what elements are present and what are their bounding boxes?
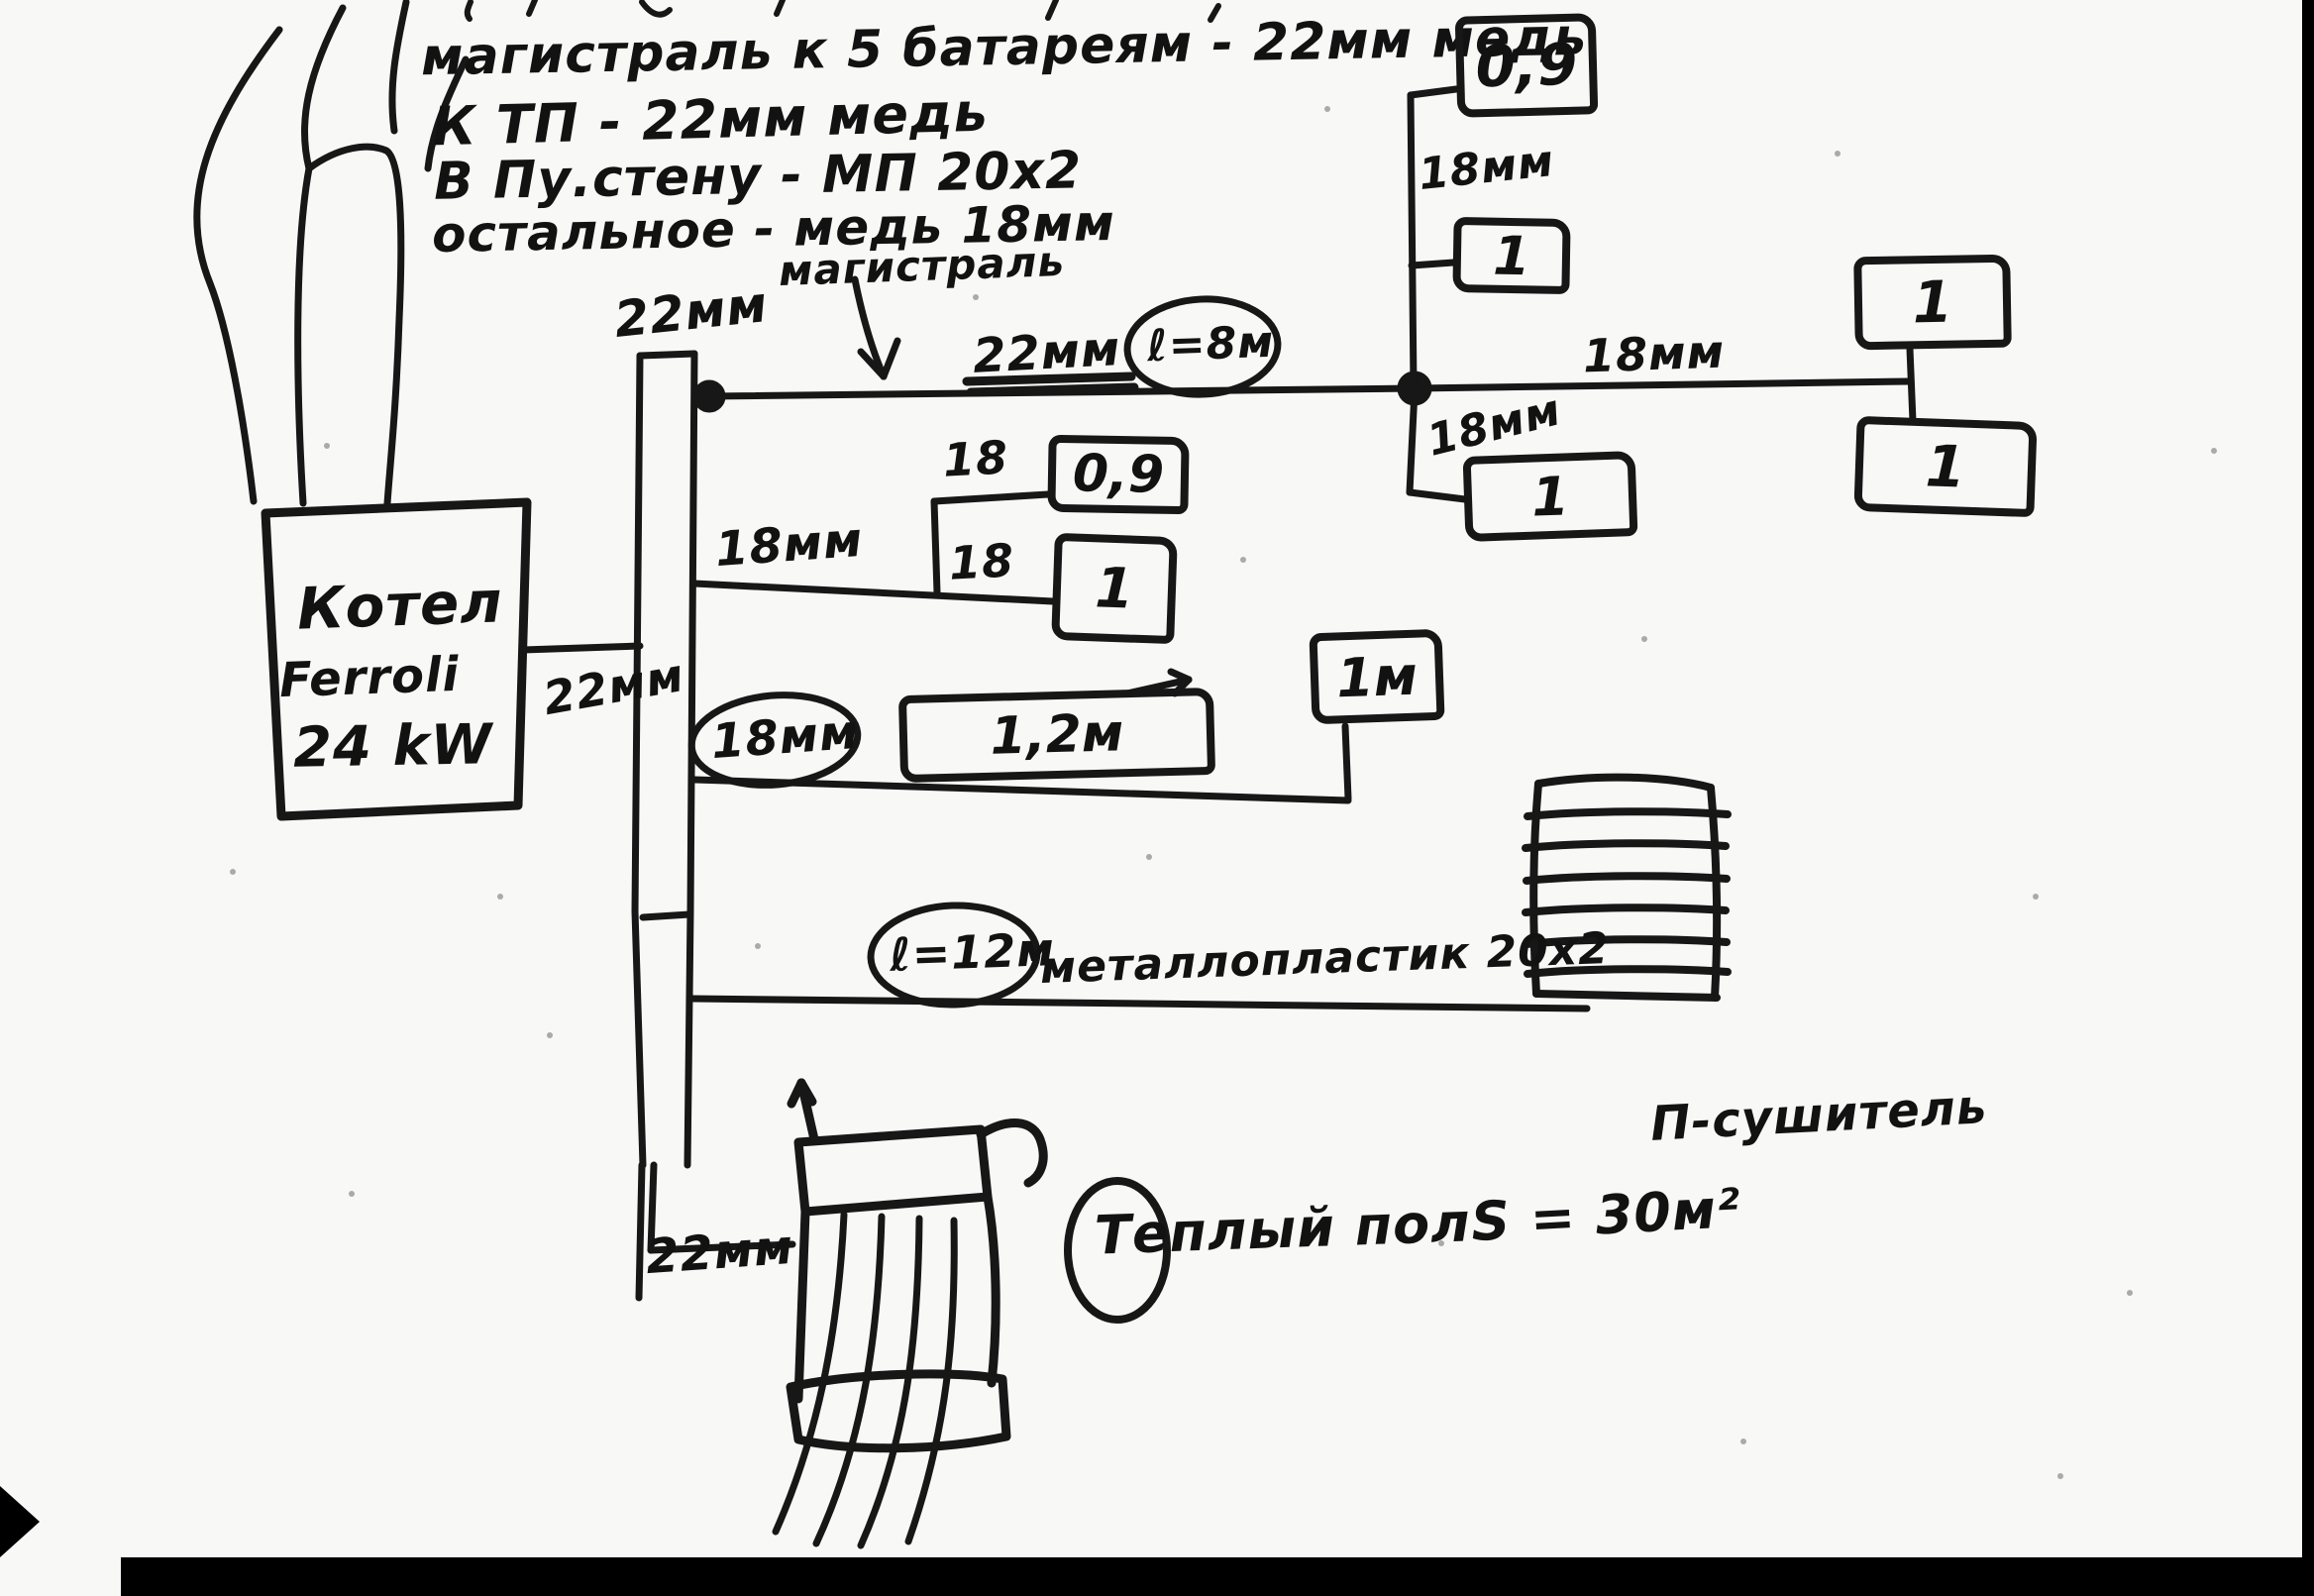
scanned-heating-diagram: магистраль к 5 батареям - 22мм медь К ТП… (0, 0, 2314, 1596)
branch-top-right (1411, 89, 1456, 386)
floor-manifold-drawing (776, 1083, 1167, 1545)
scan-edge-wedge (0, 1486, 40, 1557)
label-floor-length-12m: ℓ=12м (889, 926, 1055, 978)
label-main-right-18mm: 18мм (1582, 329, 1726, 379)
scan-edge-bottom (121, 1557, 2314, 1596)
floor-heating-label: Теплый пол (1094, 1196, 1471, 1262)
radiator-box: 1м (1309, 629, 1444, 725)
floor-heating-area: S = 30м² (1470, 1182, 1742, 1249)
radiator-value: 1 (1493, 224, 1531, 287)
boiler-connection-line (523, 646, 640, 650)
far-right-connector (1910, 349, 1913, 421)
radiator-box: 1 (1051, 533, 1178, 644)
label-riser-22mm: 22мм (612, 279, 771, 345)
label-middle-18-top: 18 (942, 434, 1009, 482)
label-middle-18-bottom: 18 (948, 537, 1015, 585)
main-line (696, 374, 1909, 409)
diagram-strokes (0, 0, 2314, 1596)
radiator-value: 1м (1335, 644, 1419, 709)
radiator-value: 1 (1530, 465, 1570, 528)
boiler-power: 24 kW (293, 717, 493, 777)
riser-pipe (635, 354, 792, 1298)
radiator-box: 1 (1452, 217, 1570, 294)
label-middle-18mm: 18мм (714, 516, 865, 574)
floor-heating-line (691, 999, 1587, 1009)
radiator-box: 1 (1463, 451, 1638, 542)
scan-edge-right (2302, 0, 2314, 1596)
radiator-value: 1 (1912, 268, 1953, 337)
radiator-box: 1 (1853, 416, 2037, 517)
boiler-name: Котел (296, 573, 504, 637)
label-main-22mm: 22мм (972, 325, 1122, 380)
radiator-box: 0,9 (1047, 435, 1189, 514)
radiator-value: 0,9 (1475, 31, 1578, 101)
radiator-box: 1 (1853, 255, 2012, 351)
junction-dot (696, 383, 722, 409)
note-pointer-label: магистраль (778, 241, 1065, 292)
pointer-arrow (855, 279, 897, 376)
radiator-value: 0,9 (1072, 444, 1164, 505)
radiator-box: 1,2м (898, 688, 1215, 783)
radiator-value: 1,2м (990, 703, 1124, 767)
radiator-box: 0,9 (1455, 13, 1599, 118)
label-floor-conn-22mm: 22мм (645, 1224, 795, 1281)
radiator-value: 1 (1094, 556, 1134, 621)
label-main-length-8m: ℓ=8м (1146, 321, 1275, 369)
boiler-brand: Ferroli (278, 651, 460, 704)
label-lower-18mm: 18мм (710, 708, 861, 766)
radiator-value: 1 (1925, 432, 1967, 500)
